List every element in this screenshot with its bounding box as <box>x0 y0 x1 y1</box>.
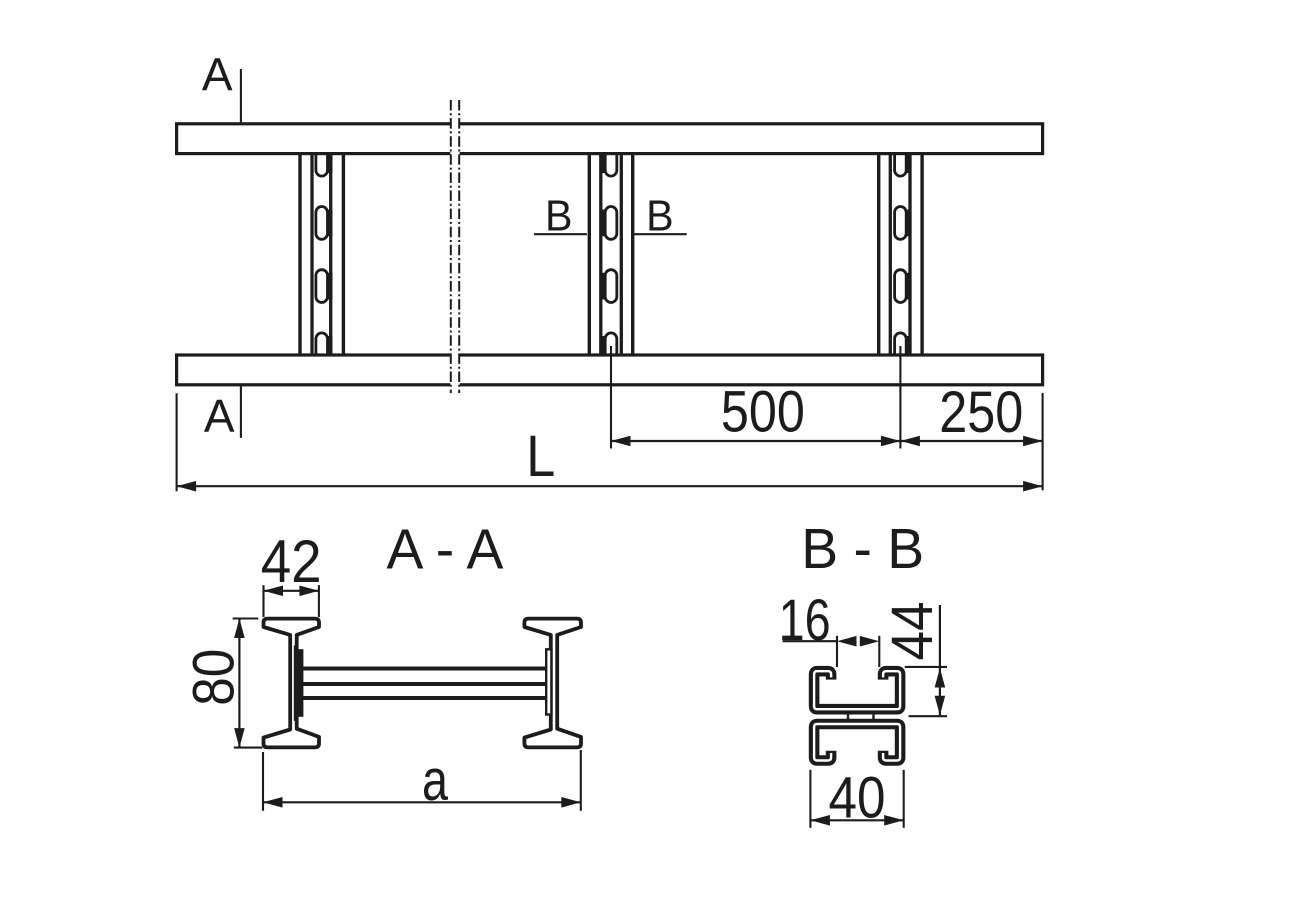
svg-text:500: 500 <box>721 380 805 445</box>
svg-text:A: A <box>204 390 235 442</box>
svg-text:A - A: A - A <box>387 518 504 582</box>
svg-text:B - B: B - B <box>801 517 924 581</box>
svg-text:44: 44 <box>880 602 945 661</box>
svg-text:a: a <box>422 748 449 813</box>
svg-text:A: A <box>202 49 233 101</box>
svg-text:L: L <box>526 424 555 489</box>
svg-text:B: B <box>545 192 573 240</box>
svg-text:250: 250 <box>939 380 1023 445</box>
svg-text:B: B <box>646 192 674 240</box>
svg-text:40: 40 <box>829 766 886 831</box>
svg-text:42: 42 <box>261 528 322 595</box>
svg-text:80: 80 <box>182 649 247 706</box>
svg-text:16: 16 <box>779 588 831 653</box>
